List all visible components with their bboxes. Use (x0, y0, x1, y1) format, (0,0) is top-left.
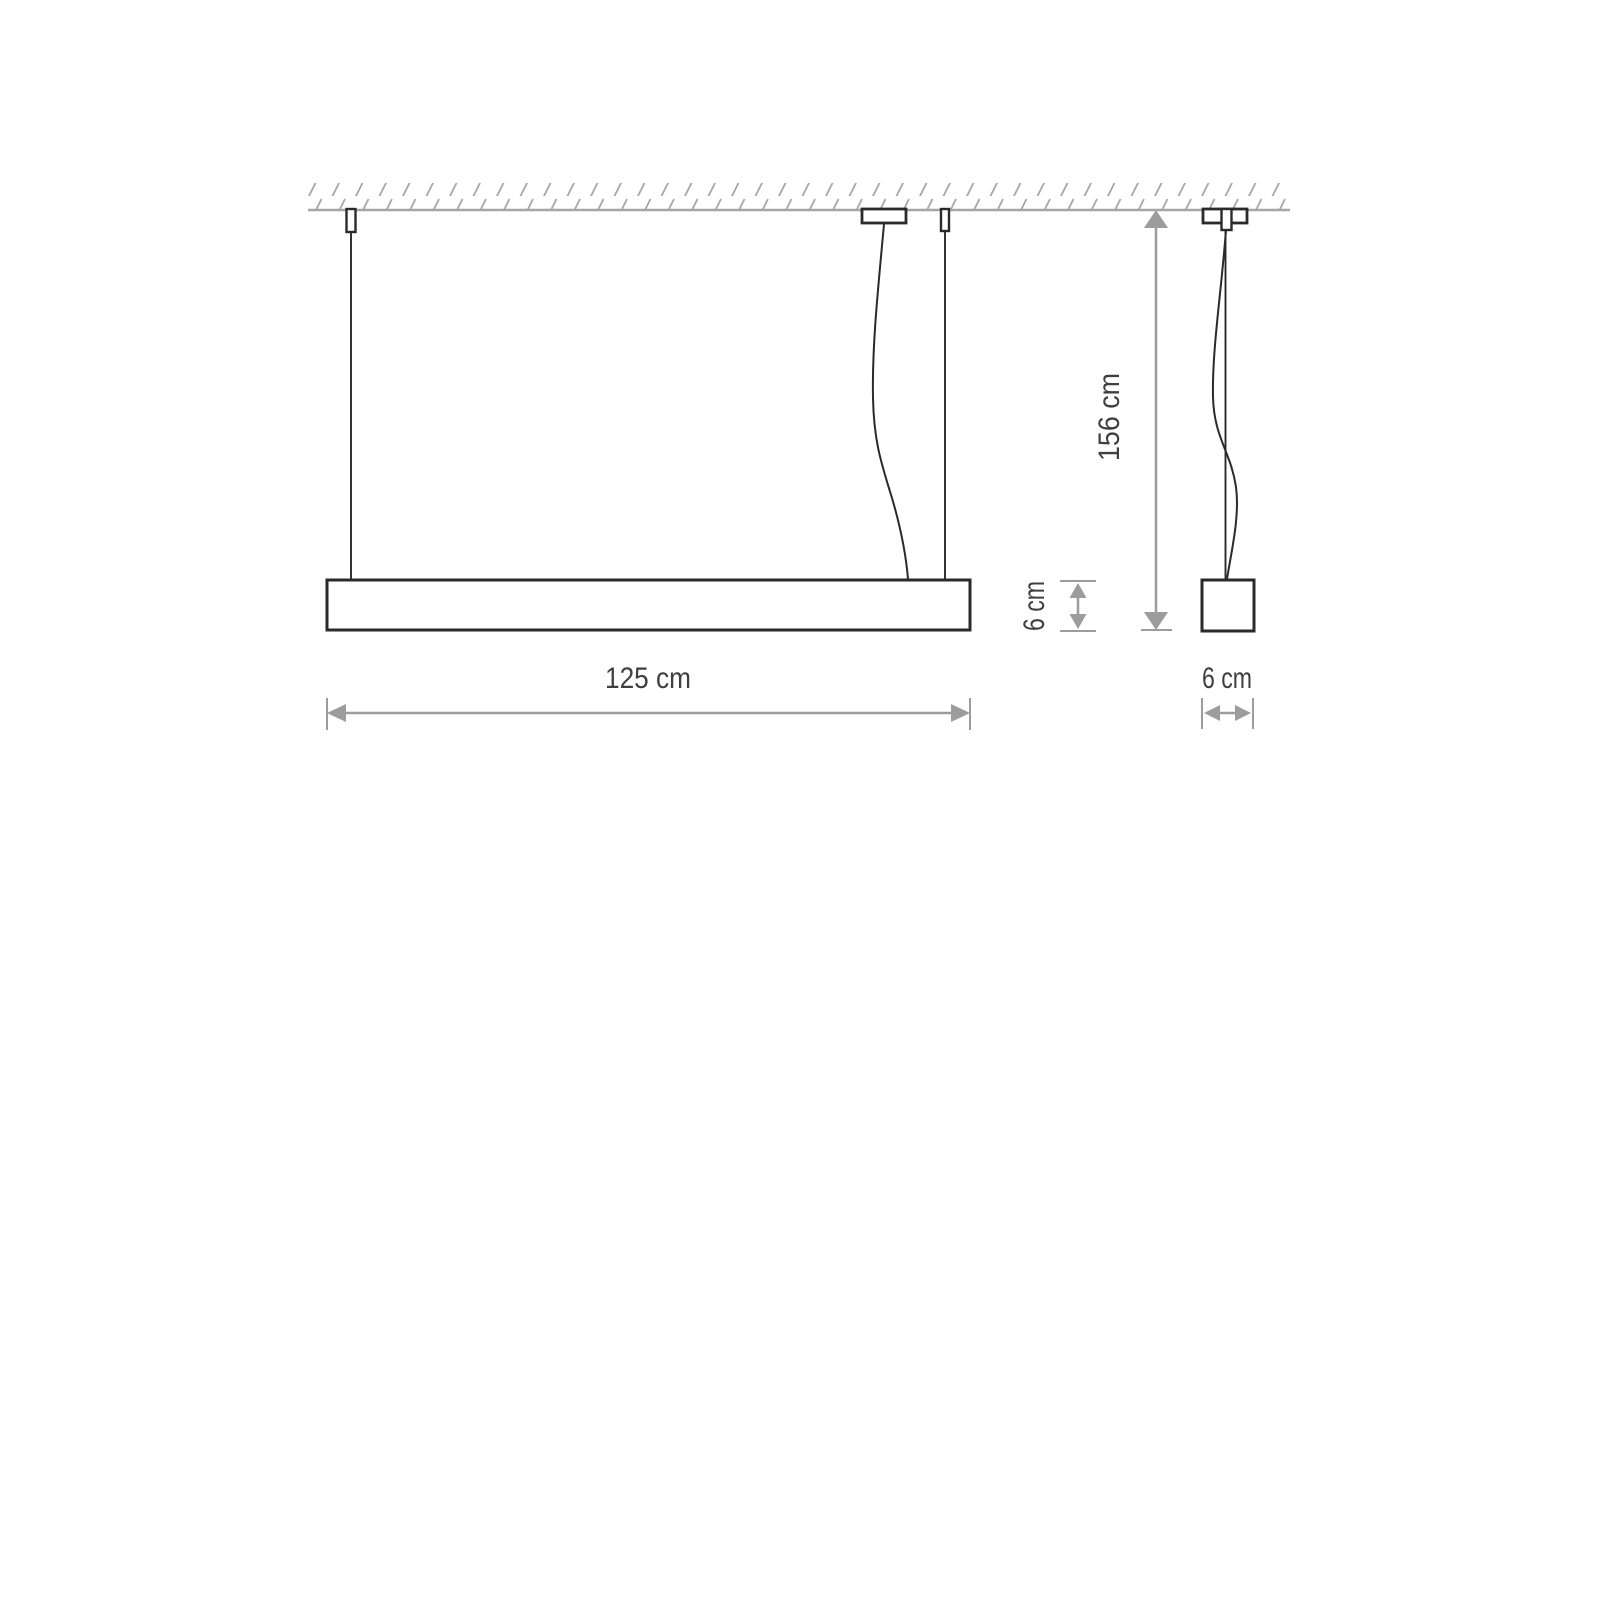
arrowhead-up-icon (1070, 583, 1087, 598)
dimension-width-label: 125 cm (605, 662, 691, 695)
arrowhead-down-icon (1144, 612, 1168, 630)
ceiling-hatching (306, 183, 1292, 210)
ceiling (306, 183, 1292, 210)
arrowhead-right-icon (1235, 705, 1251, 721)
left-suspension-mount (347, 209, 356, 232)
drawing-svg: 125 cm 156 cm 6 cm 6 cm (0, 0, 1600, 1600)
power-cable (873, 224, 908, 579)
dimension-profile-depth: 6 cm (1202, 662, 1253, 729)
dimension-height: 156 cm (1093, 210, 1172, 630)
profile-height-label: 6 cm (1018, 581, 1051, 631)
power-canopy (862, 209, 906, 223)
lamp-side-view (1202, 209, 1254, 631)
arrowhead-left-icon (1204, 705, 1220, 721)
lamp-profile-side (1202, 580, 1254, 631)
dimension-height-label: 156 cm (1093, 373, 1126, 461)
right-suspension-mount (941, 209, 949, 231)
side-canopy-tab (1222, 209, 1232, 230)
arrowhead-down-icon (1070, 614, 1087, 629)
arrowhead-up-icon (1144, 210, 1168, 228)
dimension-profile-height: 6 cm (1018, 581, 1096, 631)
lamp-front-view (327, 209, 970, 630)
dimension-width: 125 cm (327, 662, 970, 730)
lamp-profile-front (327, 580, 970, 630)
arrowhead-right-icon (951, 704, 970, 722)
dimension-drawing: 125 cm 156 cm 6 cm 6 cm (0, 0, 1600, 1600)
arrowhead-left-icon (327, 704, 346, 722)
profile-depth-label: 6 cm (1202, 662, 1252, 695)
